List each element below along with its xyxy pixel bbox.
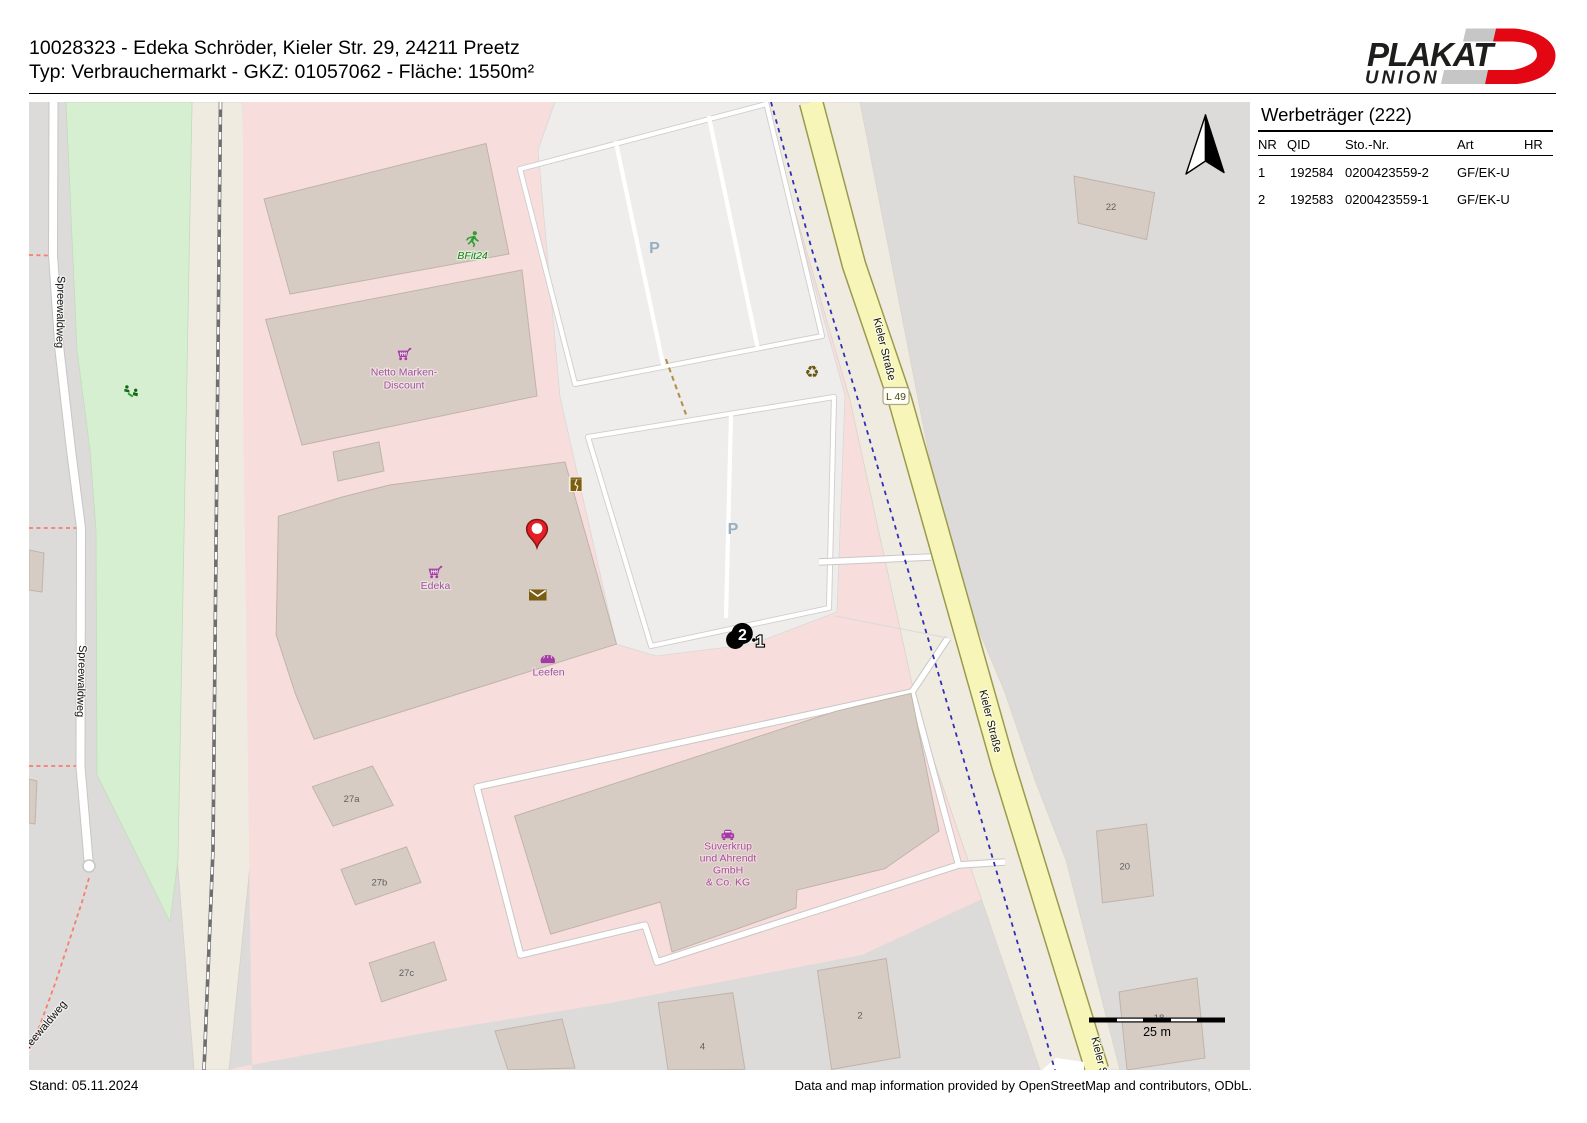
- svg-text:22: 22: [1106, 202, 1117, 213]
- svg-text:1: 1: [756, 634, 765, 651]
- svg-text:Netto Marken-: Netto Marken-: [371, 367, 438, 379]
- svg-text:Leefen: Leefen: [532, 667, 564, 679]
- svg-text:& Co. KG: & Co. KG: [706, 877, 750, 889]
- svg-text:GmbH: GmbH: [713, 865, 743, 877]
- svg-text:Spreewaldweg: Spreewaldweg: [53, 276, 66, 348]
- svg-text:4: 4: [700, 1041, 705, 1052]
- svg-text:L 49: L 49: [886, 391, 906, 403]
- svg-text:Edeka: Edeka: [421, 580, 451, 592]
- svg-text:27c: 27c: [399, 968, 415, 979]
- svg-text:Süverkrüp: Süverkrüp: [704, 841, 752, 853]
- svg-text:20: 20: [1120, 862, 1131, 873]
- svg-text:Spreewaldweg: Spreewaldweg: [74, 645, 89, 718]
- svg-text:Discount: Discount: [384, 380, 425, 392]
- svg-text:27b: 27b: [371, 878, 387, 889]
- svg-text:P: P: [649, 240, 660, 257]
- svg-text:und Ahrendt: und Ahrendt: [700, 853, 757, 865]
- svg-text:2: 2: [857, 1011, 862, 1022]
- svg-text:27a: 27a: [344, 794, 361, 805]
- svg-text:♻: ♻: [805, 364, 820, 382]
- svg-text:25 m: 25 m: [1143, 1025, 1171, 1039]
- svg-text:2: 2: [738, 627, 747, 644]
- svg-text:P: P: [728, 521, 739, 538]
- svg-text:BFit24: BFit24: [457, 250, 488, 262]
